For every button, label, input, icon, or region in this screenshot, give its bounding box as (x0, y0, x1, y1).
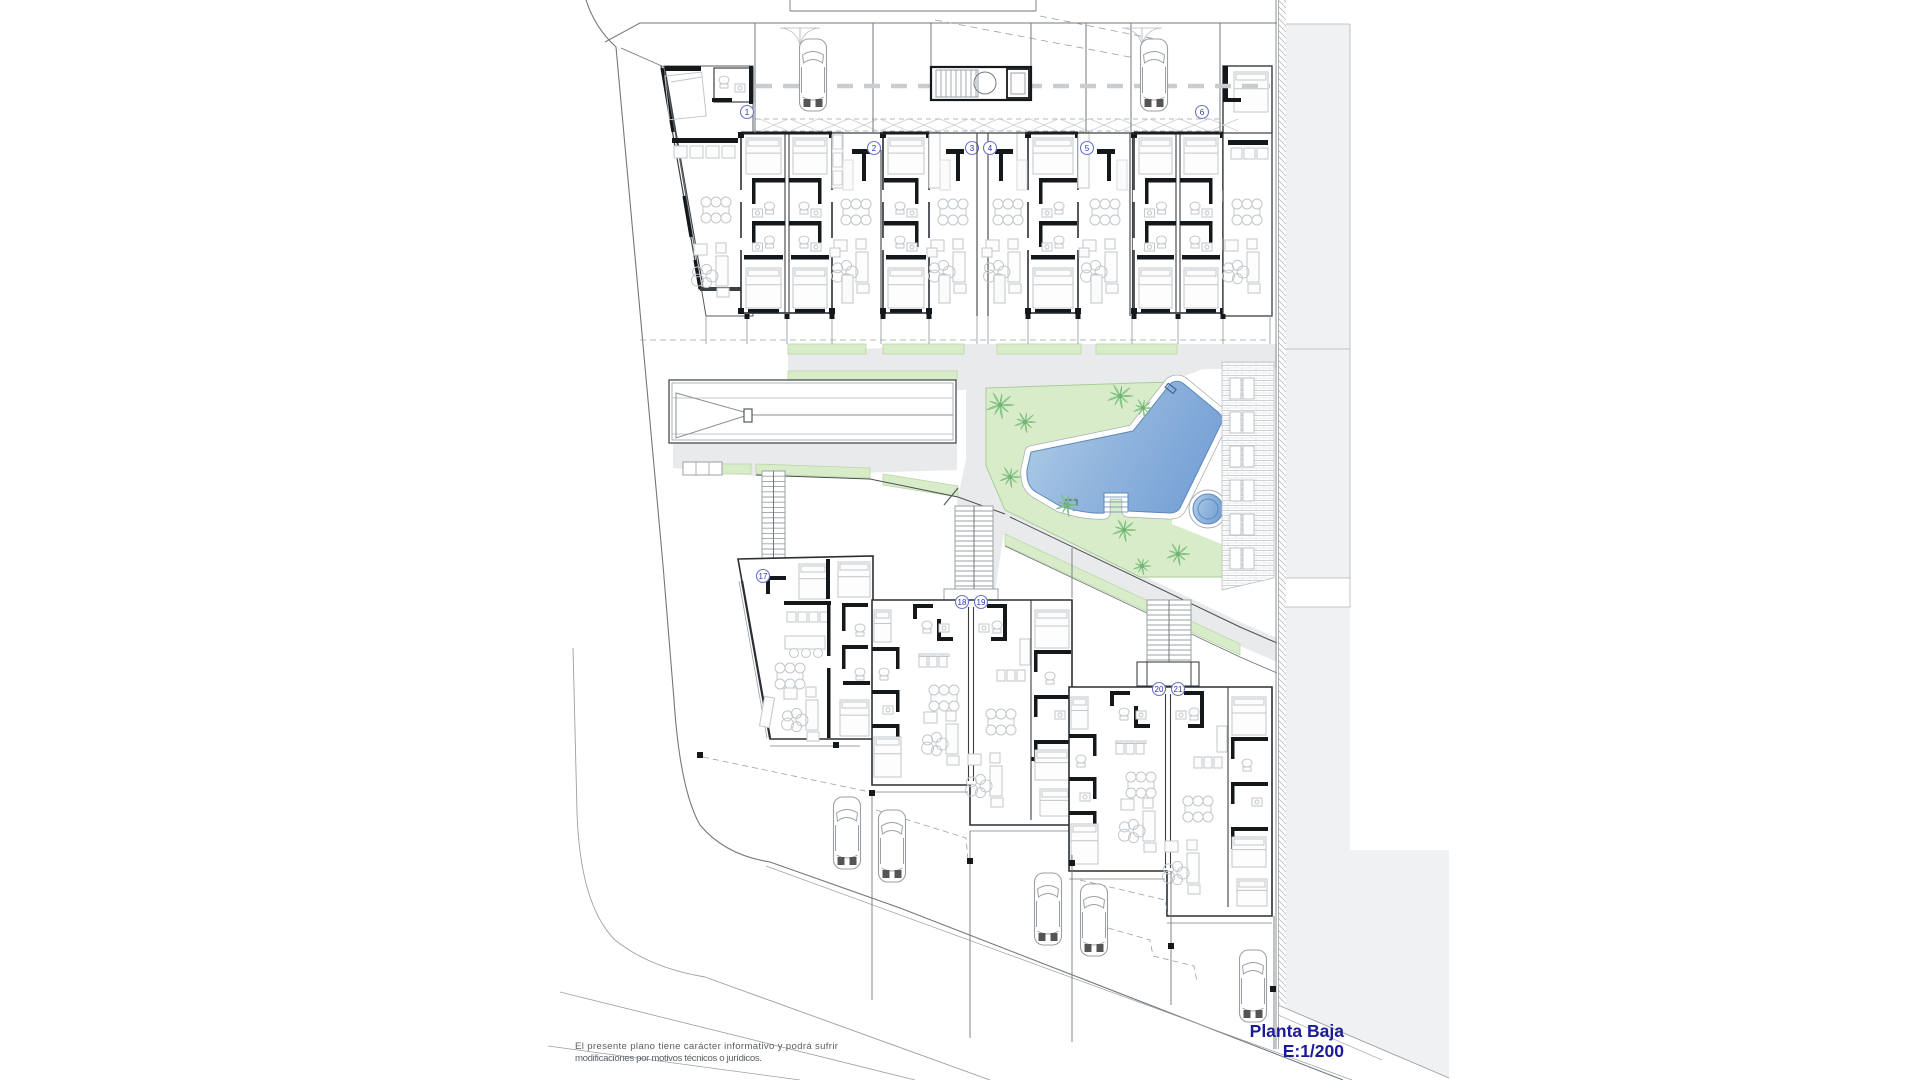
svg-text:17: 17 (759, 572, 768, 581)
svg-text:E:1/200: E:1/200 (1283, 1041, 1345, 1061)
svg-text:18: 18 (958, 598, 967, 607)
svg-text:4: 4 (988, 144, 993, 153)
svg-text:6: 6 (1200, 108, 1205, 117)
svg-text:modificaciones por motivos téc: modificaciones por motivos técnicos o ju… (575, 1053, 762, 1064)
svg-text:19: 19 (977, 598, 986, 607)
svg-text:21: 21 (1174, 685, 1183, 694)
svg-text:2: 2 (872, 144, 877, 153)
svg-text:3: 3 (970, 144, 975, 153)
svg-text:5: 5 (1085, 144, 1090, 153)
svg-text:1: 1 (745, 108, 750, 117)
svg-text:El presente plano tiene caráct: El presente plano tiene carácter informa… (575, 1041, 839, 1052)
svg-text:20: 20 (1155, 685, 1164, 694)
svg-text:Planta Baja: Planta Baja (1250, 1021, 1345, 1041)
